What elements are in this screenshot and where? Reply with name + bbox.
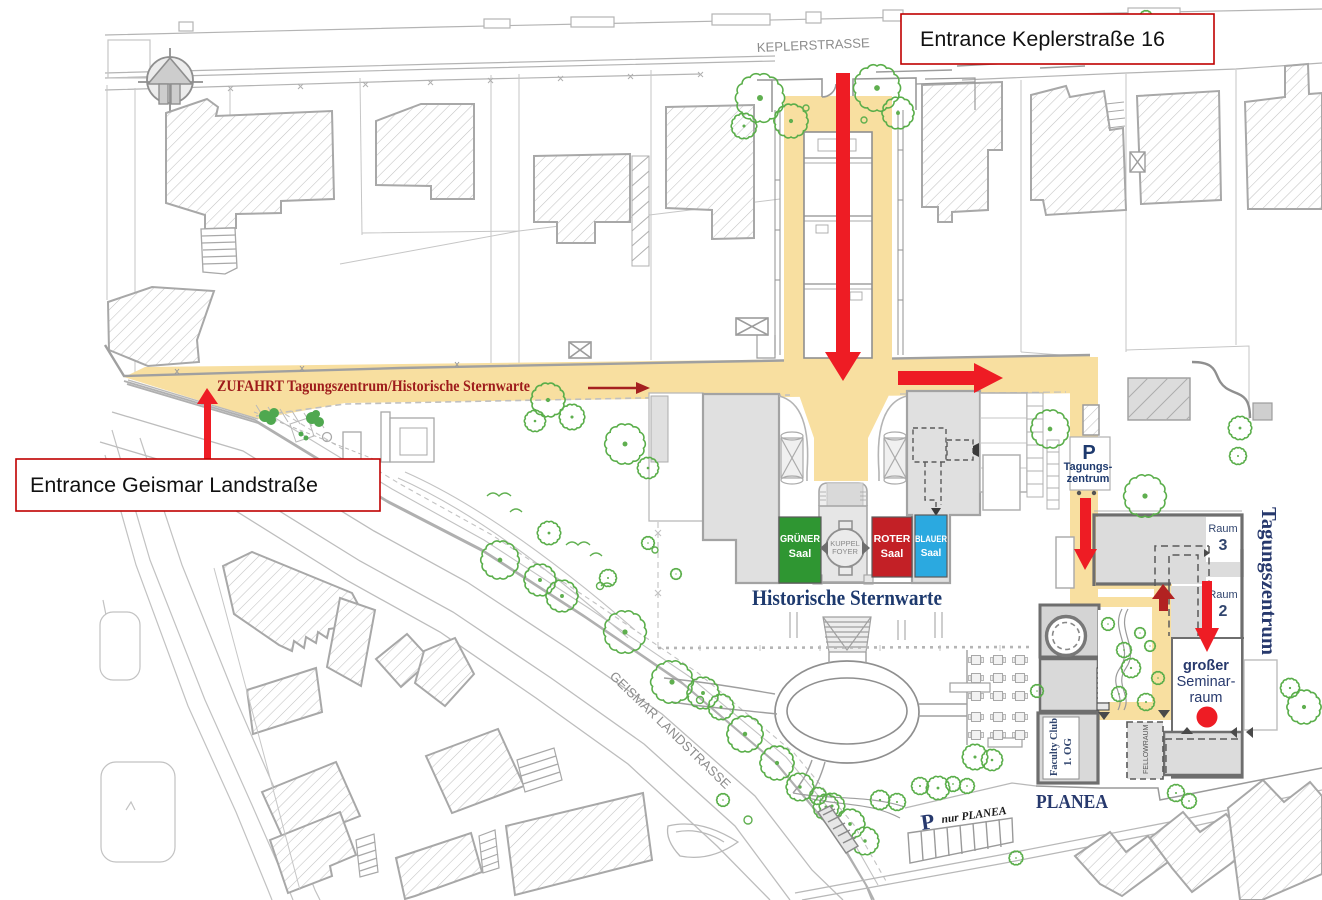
svg-text:großer: großer xyxy=(1183,658,1229,674)
svg-text:Raum: Raum xyxy=(1208,523,1237,535)
svg-text:ROTER: ROTER xyxy=(874,533,911,545)
svg-text:Tagungs-: Tagungs- xyxy=(1064,461,1113,473)
svg-text:PLANEA: PLANEA xyxy=(1036,791,1108,813)
svg-text:Saal: Saal xyxy=(921,548,942,559)
svg-text:Tagungszentrum: Tagungszentrum xyxy=(1257,507,1281,655)
svg-text:BLAUER: BLAUER xyxy=(915,534,947,545)
svg-text:Seminar-: Seminar- xyxy=(1177,674,1236,690)
svg-text:Historische Sternwarte: Historische Sternwarte xyxy=(752,585,942,610)
svg-text:Entrance Geismar Landstraße: Entrance Geismar Landstraße xyxy=(30,473,318,497)
svg-text:Entrance Keplerstraße 16: Entrance Keplerstraße 16 xyxy=(920,27,1165,51)
svg-text:2: 2 xyxy=(1219,603,1228,620)
svg-text:FOYER: FOYER xyxy=(832,547,858,556)
svg-text:Saal: Saal xyxy=(881,548,904,560)
svg-text:Faculty Club: Faculty Club xyxy=(1048,718,1060,776)
svg-text:ZUFAHRT Tagungszentrum/Histori: ZUFAHRT Tagungszentrum/Historische Stern… xyxy=(217,378,530,395)
svg-text:zentrum: zentrum xyxy=(1067,473,1110,485)
svg-text:Saal: Saal xyxy=(789,548,812,560)
svg-text:GRÜNER: GRÜNER xyxy=(780,532,820,545)
svg-text:raum: raum xyxy=(1189,690,1222,706)
svg-text:1. OG: 1. OG xyxy=(1062,737,1074,766)
svg-text:Raum: Raum xyxy=(1208,589,1237,601)
svg-text:3: 3 xyxy=(1219,537,1228,554)
svg-text:FELLOWRAUM: FELLOWRAUM xyxy=(1143,724,1150,774)
